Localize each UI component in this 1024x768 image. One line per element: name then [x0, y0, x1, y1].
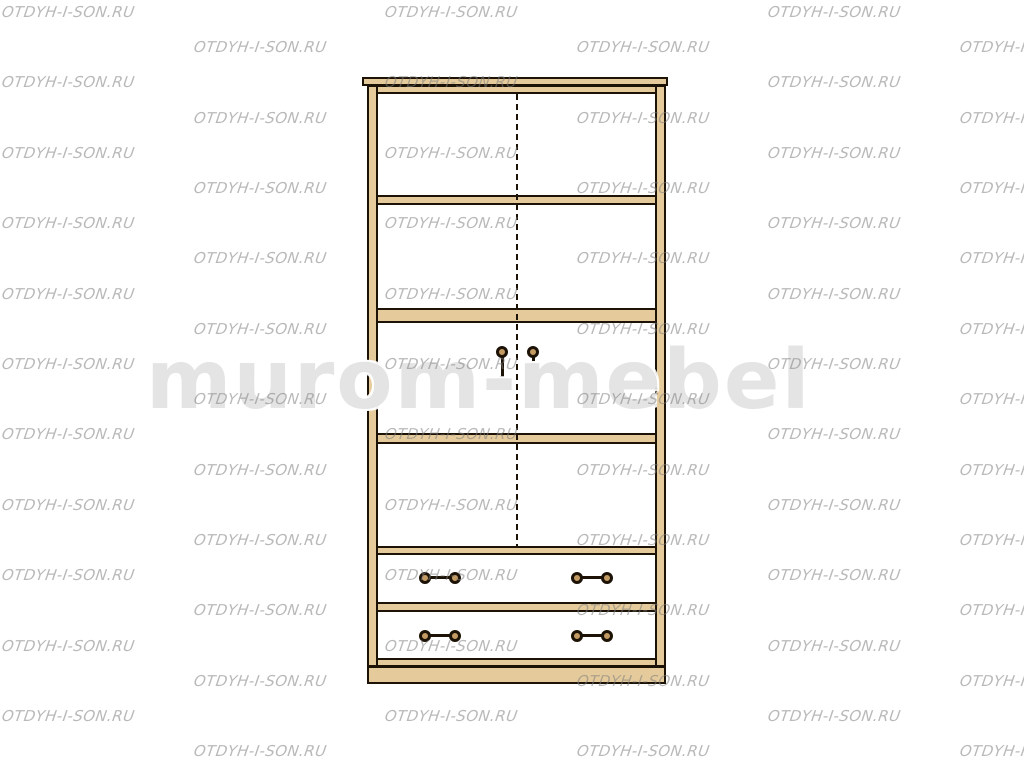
watermark-text: OTDYH-I-SON.RU: [767, 285, 902, 303]
watermark-text: OTDYH-I-SON.RU: [384, 285, 519, 303]
watermark-text: OTDYH-I-SON.RU: [576, 109, 711, 127]
watermark-text: OTDYH-I-SON.RU: [384, 73, 519, 91]
watermark-text: OTDYH-I-SON.RU: [1, 144, 136, 162]
watermark-text: OTDYH-I-SON.RU: [576, 38, 711, 56]
watermark-text: OTDYH-I-SON.RU: [384, 355, 519, 373]
watermark-text: OTDYH-I-SON.RU: [1, 707, 136, 725]
watermark-text: OTDYH-I-SON.RU: [193, 672, 328, 690]
watermark-text: OTDYH-I-SON.RU: [767, 496, 902, 514]
handle-knob: [571, 630, 583, 642]
watermark-text: OTDYH-I-SON.RU: [959, 38, 1024, 56]
watermark-text: OTDYH-I-SON.RU: [1, 355, 136, 373]
watermark-text: OTDYH-I-SON.RU: [576, 742, 711, 760]
watermark-text: OTDYH-I-SON.RU: [576, 461, 711, 479]
handle-knob: [601, 572, 613, 584]
watermark-text: OTDYH-I-SON.RU: [767, 566, 902, 584]
watermark-text: OTDYH-I-SON.RU: [1, 214, 136, 232]
handle-knob: [601, 630, 613, 642]
watermark-text: OTDYH-I-SON.RU: [959, 109, 1024, 127]
watermark-text: OTDYH-I-SON.RU: [1, 3, 136, 21]
watermark-text: OTDYH-I-SON.RU: [959, 742, 1024, 760]
watermark-text: OTDYH-I-SON.RU: [767, 3, 902, 21]
watermark-text: OTDYH-I-SON.RU: [384, 637, 519, 655]
watermark-text: OTDYH-I-SON.RU: [384, 566, 519, 584]
watermark-text: OTDYH-I-SON.RU: [1, 566, 136, 584]
handle-knob: [571, 572, 583, 584]
watermark-text: OTDYH-I-SON.RU: [576, 672, 711, 690]
watermark-text: OTDYH-I-SON.RU: [959, 390, 1024, 408]
watermark-text: OTDYH-I-SON.RU: [193, 38, 328, 56]
watermark-text: OTDYH-I-SON.RU: [576, 601, 711, 619]
watermark-text: OTDYH-I-SON.RU: [193, 461, 328, 479]
watermark-text: OTDYH-I-SON.RU: [193, 742, 328, 760]
watermark-text: OTDYH-I-SON.RU: [959, 672, 1024, 690]
watermark-text: OTDYH-I-SON.RU: [767, 73, 902, 91]
watermark-text: OTDYH-I-SON.RU: [959, 249, 1024, 267]
watermark-text: OTDYH-I-SON.RU: [767, 707, 902, 725]
watermark-text: OTDYH-I-SON.RU: [384, 496, 519, 514]
watermark-text: OTDYH-I-SON.RU: [384, 3, 519, 21]
watermark-text: OTDYH-I-SON.RU: [1, 496, 136, 514]
watermark-text: OTDYH-I-SON.RU: [959, 461, 1024, 479]
watermark-text: OTDYH-I-SON.RU: [384, 707, 519, 725]
watermark-text: OTDYH-I-SON.RU: [576, 320, 711, 338]
watermark-text: OTDYH-I-SON.RU: [193, 249, 328, 267]
watermark-text: OTDYH-I-SON.RU: [767, 144, 902, 162]
watermark-text: OTDYH-I-SON.RU: [1, 637, 136, 655]
watermark-text: OTDYH-I-SON.RU: [1, 285, 136, 303]
watermark-text: OTDYH-I-SON.RU: [193, 601, 328, 619]
watermark-text: OTDYH-I-SON.RU: [959, 601, 1024, 619]
screen: murom-mebel OTDYH-I-SON.RUOTDYH-I-SON.RU…: [0, 0, 1024, 768]
watermark-text: OTDYH-I-SON.RU: [193, 179, 328, 197]
watermark-text: OTDYH-I-SON.RU: [384, 425, 519, 443]
watermark-text: OTDYH-I-SON.RU: [193, 320, 328, 338]
watermark-text: OTDYH-I-SON.RU: [576, 179, 711, 197]
brand-watermark: murom-mebel: [146, 340, 812, 422]
watermark-text: OTDYH-I-SON.RU: [384, 144, 519, 162]
watermark-text: OTDYH-I-SON.RU: [193, 109, 328, 127]
watermark-text: OTDYH-I-SON.RU: [384, 214, 519, 232]
watermark-text: OTDYH-I-SON.RU: [1, 73, 136, 91]
watermark-text: OTDYH-I-SON.RU: [767, 637, 902, 655]
watermark-text: OTDYH-I-SON.RU: [767, 355, 902, 373]
door-split-dashed-line: [516, 94, 518, 546]
watermark-text: OTDYH-I-SON.RU: [959, 320, 1024, 338]
watermark-text: OTDYH-I-SON.RU: [767, 214, 902, 232]
watermark-text: OTDYH-I-SON.RU: [193, 531, 328, 549]
watermark-text: OTDYH-I-SON.RU: [959, 531, 1024, 549]
watermark-text: OTDYH-I-SON.RU: [767, 425, 902, 443]
watermark-text: OTDYH-I-SON.RU: [576, 531, 711, 549]
watermark-text: OTDYH-I-SON.RU: [193, 390, 328, 408]
watermark-text: OTDYH-I-SON.RU: [959, 179, 1024, 197]
watermark-text: OTDYH-I-SON.RU: [576, 390, 711, 408]
watermark-text: OTDYH-I-SON.RU: [1, 425, 136, 443]
watermark-text: OTDYH-I-SON.RU: [576, 249, 711, 267]
